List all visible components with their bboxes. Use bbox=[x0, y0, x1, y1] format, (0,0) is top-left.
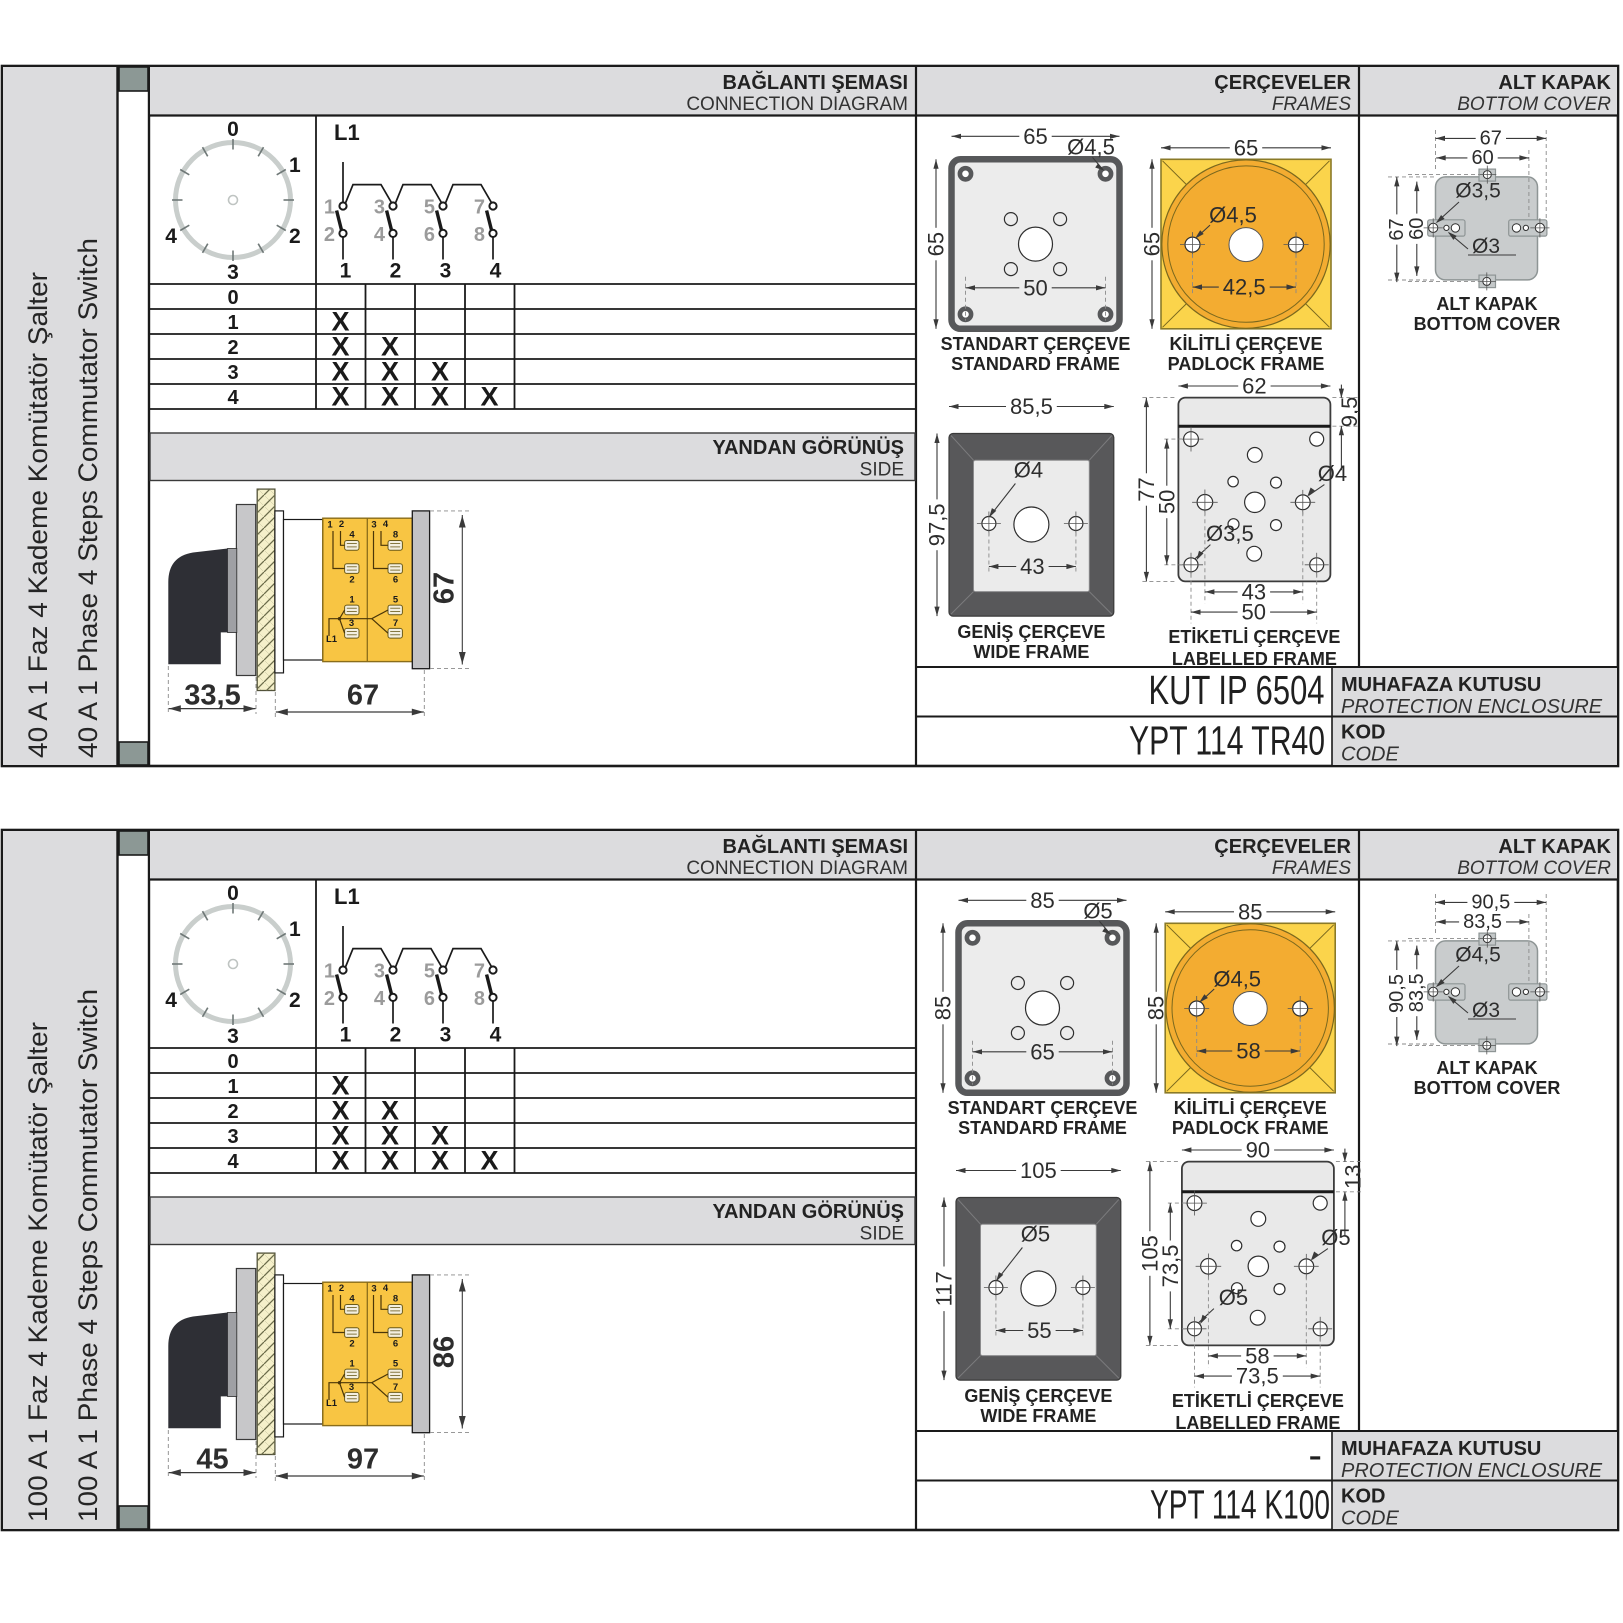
svg-text:KUT IP 6504: KUT IP 6504 bbox=[1149, 667, 1325, 713]
svg-text:2: 2 bbox=[324, 988, 335, 1010]
svg-text:4: 4 bbox=[490, 260, 502, 283]
svg-text:65: 65 bbox=[1140, 232, 1165, 256]
svg-text:3: 3 bbox=[227, 1126, 238, 1148]
svg-text:1: 1 bbox=[349, 594, 355, 605]
svg-text:1: 1 bbox=[327, 520, 333, 531]
svg-text:100 A 1 Faz 4 Kademe Komütatör: 100 A 1 Faz 4 Kademe Komütatör Şalter bbox=[23, 1022, 53, 1522]
svg-text:8: 8 bbox=[393, 1294, 398, 1305]
svg-text:X: X bbox=[431, 1146, 449, 1176]
svg-text:1: 1 bbox=[349, 1358, 355, 1369]
svg-text:85: 85 bbox=[1144, 996, 1169, 1020]
svg-text:83,5: 83,5 bbox=[1463, 911, 1502, 933]
svg-text:4: 4 bbox=[227, 387, 239, 409]
svg-text:3: 3 bbox=[374, 197, 385, 219]
svg-text:5: 5 bbox=[393, 594, 399, 605]
svg-text:83,5: 83,5 bbox=[1406, 973, 1428, 1012]
svg-text:Ø5: Ø5 bbox=[1083, 898, 1112, 923]
svg-text:7: 7 bbox=[393, 1382, 398, 1393]
svg-text:100 A 1 Phase 4 Steps Commutat: 100 A 1 Phase 4 Steps Commutator Switch bbox=[73, 989, 103, 1522]
svg-text:67: 67 bbox=[429, 572, 461, 604]
svg-text:1: 1 bbox=[324, 961, 335, 983]
svg-text:4: 4 bbox=[227, 1151, 239, 1173]
svg-text:65: 65 bbox=[1030, 1039, 1054, 1064]
svg-text:3: 3 bbox=[371, 1284, 376, 1295]
svg-text:KİLİTLİ ÇERÇEVE: KİLİTLİ ÇERÇEVE bbox=[1174, 1098, 1327, 1118]
svg-text:97: 97 bbox=[347, 1444, 379, 1476]
svg-text:KOD: KOD bbox=[1341, 1486, 1385, 1508]
svg-text:117: 117 bbox=[932, 1271, 957, 1306]
svg-text:3: 3 bbox=[371, 520, 376, 531]
svg-text:STANDART ÇERÇEVE: STANDART ÇERÇEVE bbox=[948, 1098, 1138, 1118]
svg-text:PADLOCK FRAME: PADLOCK FRAME bbox=[1172, 1118, 1329, 1138]
svg-text:6: 6 bbox=[424, 224, 435, 246]
svg-text:40 A 1 Phase 4 Steps Commutato: 40 A 1 Phase 4 Steps Commutator Switch bbox=[73, 238, 103, 758]
svg-text:L1: L1 bbox=[326, 634, 338, 645]
svg-text:GENİŞ ÇERÇEVE: GENİŞ ÇERÇEVE bbox=[964, 1386, 1112, 1406]
svg-text:73,5: 73,5 bbox=[1236, 1364, 1279, 1389]
svg-text:97,5: 97,5 bbox=[925, 503, 950, 546]
svg-text:Ø5: Ø5 bbox=[1021, 1222, 1050, 1247]
svg-text:42,5: 42,5 bbox=[1223, 275, 1266, 300]
svg-text:ETİKETLİ ÇERÇEVE: ETİKETLİ ÇERÇEVE bbox=[1172, 1391, 1344, 1411]
svg-text:8: 8 bbox=[393, 530, 398, 541]
svg-text:Ø5: Ø5 bbox=[1321, 1225, 1350, 1250]
svg-text:STANDART ÇERÇEVE: STANDART ÇERÇEVE bbox=[941, 334, 1131, 354]
svg-text:33,5: 33,5 bbox=[184, 680, 240, 712]
svg-text:105: 105 bbox=[1020, 1158, 1057, 1183]
svg-text:MUHAFAZA KUTUSU: MUHAFAZA KUTUSU bbox=[1341, 1438, 1541, 1460]
svg-text:2: 2 bbox=[339, 1283, 344, 1294]
svg-text:ÇERÇEVELER: ÇERÇEVELER bbox=[1214, 72, 1351, 94]
svg-text:L1: L1 bbox=[334, 120, 360, 145]
svg-text:4: 4 bbox=[383, 1283, 389, 1294]
svg-text:Ø5: Ø5 bbox=[1219, 1285, 1248, 1310]
svg-text:2: 2 bbox=[289, 225, 301, 248]
svg-text:6: 6 bbox=[393, 575, 398, 586]
svg-text:3: 3 bbox=[349, 1382, 354, 1393]
svg-text:4: 4 bbox=[349, 1294, 355, 1305]
svg-text:2: 2 bbox=[324, 224, 335, 246]
svg-text:YANDAN GÖRÜNÜŞ: YANDAN GÖRÜNÜŞ bbox=[712, 1200, 904, 1223]
svg-text:1: 1 bbox=[227, 312, 238, 334]
svg-text:4: 4 bbox=[383, 519, 389, 530]
svg-text:YANDAN GÖRÜNÜŞ: YANDAN GÖRÜNÜŞ bbox=[712, 436, 904, 459]
svg-text:STANDARD FRAME: STANDARD FRAME bbox=[958, 1118, 1127, 1138]
svg-text:0: 0 bbox=[227, 1051, 238, 1073]
svg-text:ALT KAPAK: ALT KAPAK bbox=[1498, 72, 1611, 94]
svg-text:ALT KAPAK: ALT KAPAK bbox=[1436, 294, 1537, 314]
svg-text:55: 55 bbox=[1027, 1318, 1051, 1343]
svg-text:BAĞLANTI ŞEMASI: BAĞLANTI ŞEMASI bbox=[722, 70, 908, 94]
svg-text:KİLİTLİ ÇERÇEVE: KİLİTLİ ÇERÇEVE bbox=[1169, 334, 1322, 354]
svg-text:90: 90 bbox=[1246, 1138, 1270, 1163]
svg-text:2: 2 bbox=[390, 260, 402, 283]
svg-text:PROTECTION ENCLOSURE: PROTECTION ENCLOSURE bbox=[1341, 696, 1603, 718]
svg-text:90,5: 90,5 bbox=[1386, 974, 1408, 1013]
svg-text:0: 0 bbox=[227, 287, 238, 309]
svg-text:Ø4: Ø4 bbox=[1318, 461, 1347, 486]
svg-text:SIDE: SIDE bbox=[860, 460, 904, 481]
svg-text:86: 86 bbox=[429, 1336, 461, 1368]
svg-text:85: 85 bbox=[931, 996, 956, 1020]
svg-text:FRAMES: FRAMES bbox=[1272, 94, 1352, 115]
svg-text:BOTTOM COVER: BOTTOM COVER bbox=[1457, 858, 1611, 879]
svg-text:3: 3 bbox=[349, 618, 354, 629]
svg-text:67: 67 bbox=[347, 680, 379, 712]
svg-text:2: 2 bbox=[227, 1101, 238, 1123]
svg-text:YPT 114 TR40: YPT 114 TR40 bbox=[1129, 718, 1325, 764]
svg-text:4: 4 bbox=[374, 224, 386, 246]
svg-text:8: 8 bbox=[474, 988, 485, 1010]
svg-text:2: 2 bbox=[289, 989, 301, 1012]
svg-text:Ø4,5: Ø4,5 bbox=[1067, 134, 1115, 159]
svg-text:1: 1 bbox=[289, 154, 301, 177]
svg-text:5: 5 bbox=[424, 961, 435, 983]
svg-text:3: 3 bbox=[227, 261, 239, 284]
svg-text:2: 2 bbox=[339, 519, 344, 530]
svg-text:6: 6 bbox=[393, 1339, 398, 1350]
svg-text:PROTECTION ENCLOSURE: PROTECTION ENCLOSURE bbox=[1341, 1460, 1603, 1482]
svg-text:50: 50 bbox=[1242, 600, 1266, 625]
svg-text:WIDE FRAME: WIDE FRAME bbox=[980, 1406, 1096, 1426]
svg-text:43: 43 bbox=[1020, 554, 1044, 579]
svg-text:1: 1 bbox=[327, 1284, 333, 1295]
svg-text:40 A 1 Faz 4 Kademe Komütatör: 40 A 1 Faz 4 Kademe Komütatör Şalter bbox=[23, 272, 53, 758]
svg-text:SIDE: SIDE bbox=[860, 1224, 904, 1245]
svg-text:L1: L1 bbox=[326, 1398, 338, 1409]
svg-text:3: 3 bbox=[374, 961, 385, 983]
svg-text:62: 62 bbox=[1242, 374, 1266, 399]
svg-text:13: 13 bbox=[1340, 1164, 1365, 1188]
svg-text:CONNECTION DIAGRAM: CONNECTION DIAGRAM bbox=[686, 858, 908, 879]
svg-text:4: 4 bbox=[374, 988, 386, 1010]
svg-text:67: 67 bbox=[1386, 218, 1408, 240]
svg-text:4: 4 bbox=[349, 530, 355, 541]
svg-text:9,5: 9,5 bbox=[1337, 397, 1362, 428]
svg-text:KOD: KOD bbox=[1341, 722, 1385, 744]
svg-text:-: - bbox=[1308, 1432, 1322, 1478]
svg-text:4: 4 bbox=[165, 225, 177, 248]
svg-text:X: X bbox=[381, 382, 399, 412]
svg-text:8: 8 bbox=[474, 224, 485, 246]
svg-text:GENİŞ ÇERÇEVE: GENİŞ ÇERÇEVE bbox=[957, 622, 1105, 642]
svg-text:1: 1 bbox=[289, 918, 301, 941]
svg-text:50: 50 bbox=[1154, 490, 1179, 514]
svg-text:1: 1 bbox=[340, 260, 352, 283]
svg-text:65: 65 bbox=[1023, 124, 1047, 149]
svg-text:2: 2 bbox=[349, 1339, 354, 1350]
svg-text:BAĞLANTI ŞEMASI: BAĞLANTI ŞEMASI bbox=[722, 834, 908, 858]
svg-text:6: 6 bbox=[424, 988, 435, 1010]
svg-text:1: 1 bbox=[227, 1076, 238, 1098]
svg-text:7: 7 bbox=[474, 961, 485, 983]
svg-text:2: 2 bbox=[390, 1024, 402, 1047]
svg-text:Ø4,5: Ø4,5 bbox=[1455, 944, 1501, 967]
svg-text:X: X bbox=[431, 382, 449, 412]
svg-text:PADLOCK FRAME: PADLOCK FRAME bbox=[1168, 354, 1325, 374]
svg-text:60: 60 bbox=[1471, 147, 1493, 169]
svg-text:ALT KAPAK: ALT KAPAK bbox=[1436, 1058, 1537, 1078]
svg-text:85,5: 85,5 bbox=[1010, 394, 1053, 419]
svg-text:7: 7 bbox=[393, 618, 398, 629]
svg-text:1: 1 bbox=[340, 1024, 352, 1047]
svg-text:X: X bbox=[381, 1146, 399, 1176]
svg-text:BOTTOM COVER: BOTTOM COVER bbox=[1414, 1078, 1561, 1098]
svg-text:5: 5 bbox=[424, 197, 435, 219]
svg-text:Ø4: Ø4 bbox=[1014, 458, 1043, 483]
svg-text:X: X bbox=[480, 1146, 498, 1176]
svg-text:ÇERÇEVELER: ÇERÇEVELER bbox=[1214, 836, 1351, 858]
svg-text:BOTTOM COVER: BOTTOM COVER bbox=[1414, 314, 1561, 334]
svg-text:85: 85 bbox=[1238, 899, 1262, 924]
svg-text:Ø4,5: Ø4,5 bbox=[1209, 203, 1257, 228]
svg-text:X: X bbox=[480, 382, 498, 412]
svg-text:85: 85 bbox=[1030, 888, 1054, 913]
svg-text:ALT KAPAK: ALT KAPAK bbox=[1498, 836, 1611, 858]
svg-text:65: 65 bbox=[924, 232, 949, 256]
svg-text:X: X bbox=[331, 382, 349, 412]
svg-text:7: 7 bbox=[474, 197, 485, 219]
svg-text:3: 3 bbox=[440, 260, 452, 283]
svg-text:YPT 114 K100: YPT 114 K100 bbox=[1150, 1482, 1330, 1528]
svg-text:Ø3,5: Ø3,5 bbox=[1455, 180, 1501, 203]
svg-text:0: 0 bbox=[227, 118, 239, 141]
svg-text:4: 4 bbox=[165, 989, 177, 1012]
svg-text:L1: L1 bbox=[334, 884, 360, 909]
svg-text:CODE: CODE bbox=[1341, 744, 1399, 766]
svg-text:ETİKETLİ ÇERÇEVE: ETİKETLİ ÇERÇEVE bbox=[1168, 627, 1340, 647]
svg-text:FRAMES: FRAMES bbox=[1272, 858, 1352, 879]
svg-text:5: 5 bbox=[393, 1358, 399, 1369]
svg-text:2: 2 bbox=[349, 575, 354, 586]
svg-text:MUHAFAZA KUTUSU: MUHAFAZA KUTUSU bbox=[1341, 674, 1541, 696]
svg-text:WIDE FRAME: WIDE FRAME bbox=[973, 642, 1089, 662]
svg-text:3: 3 bbox=[440, 1024, 452, 1047]
svg-text:50: 50 bbox=[1023, 275, 1047, 300]
svg-text:STANDARD FRAME: STANDARD FRAME bbox=[951, 354, 1120, 374]
svg-text:1: 1 bbox=[324, 197, 335, 219]
svg-text:58: 58 bbox=[1236, 1039, 1260, 1064]
svg-text:X: X bbox=[331, 1146, 349, 1176]
svg-text:BOTTOM COVER: BOTTOM COVER bbox=[1457, 94, 1611, 115]
svg-text:4: 4 bbox=[490, 1024, 502, 1047]
svg-text:CONNECTION DIAGRAM: CONNECTION DIAGRAM bbox=[686, 94, 908, 115]
svg-text:65: 65 bbox=[1234, 135, 1258, 160]
svg-text:2: 2 bbox=[227, 337, 238, 359]
svg-text:60: 60 bbox=[1406, 218, 1428, 240]
svg-text:73,5: 73,5 bbox=[1158, 1244, 1183, 1287]
svg-text:0: 0 bbox=[227, 882, 239, 905]
svg-text:3: 3 bbox=[227, 362, 238, 384]
svg-text:3: 3 bbox=[227, 1025, 239, 1048]
svg-text:CODE: CODE bbox=[1341, 1508, 1399, 1530]
svg-text:45: 45 bbox=[196, 1444, 228, 1476]
svg-text:Ø3,5: Ø3,5 bbox=[1206, 521, 1254, 546]
svg-text:Ø4,5: Ø4,5 bbox=[1213, 967, 1261, 992]
